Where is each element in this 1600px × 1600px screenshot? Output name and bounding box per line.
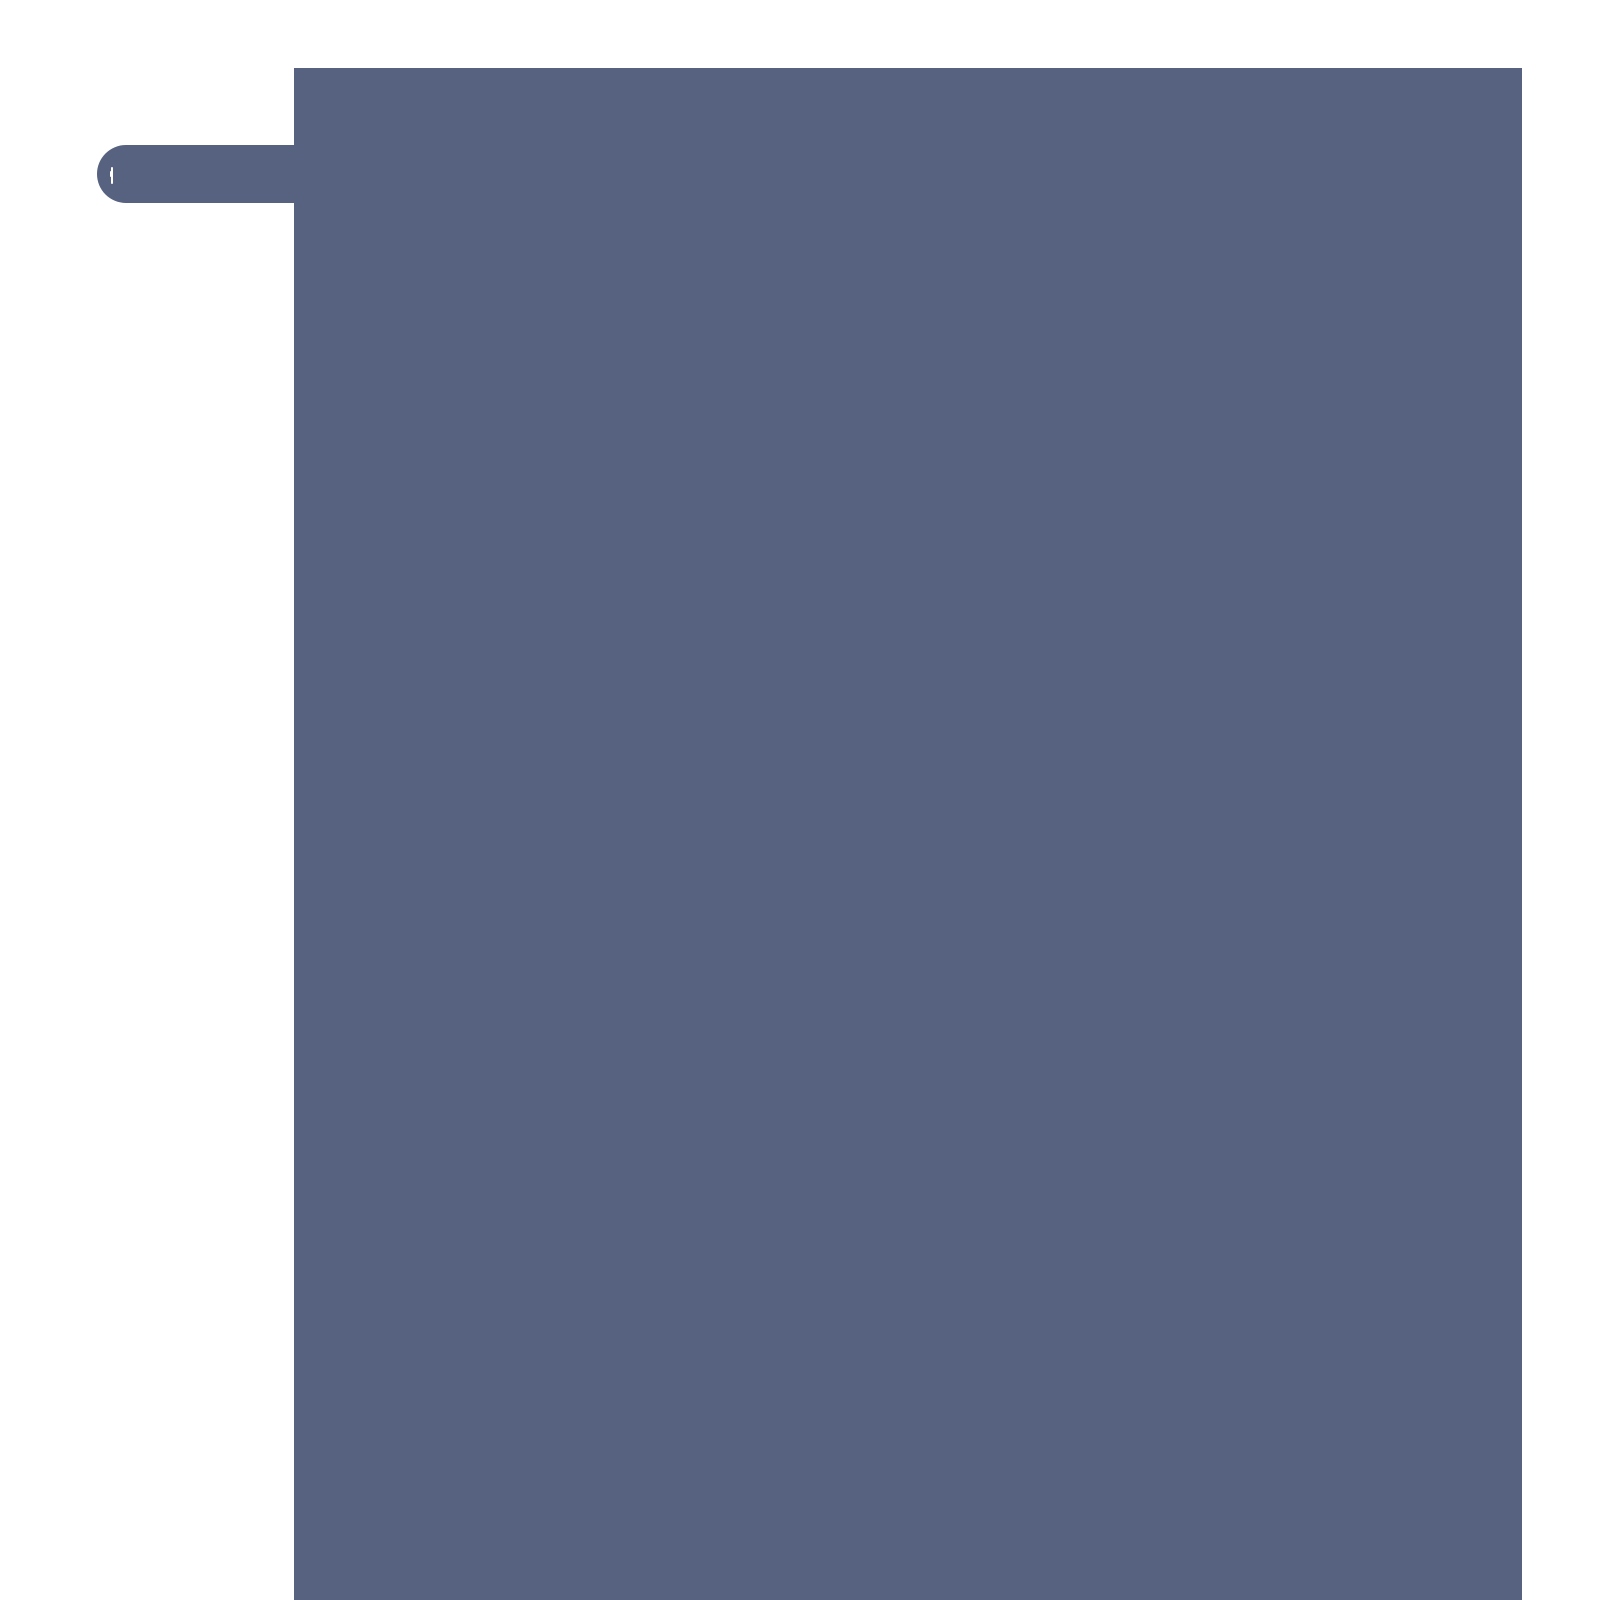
screenshot-canvas bbox=[0, 0, 1600, 1600]
panel-pull-handle[interactable] bbox=[97, 145, 300, 203]
overlay-panel bbox=[294, 68, 1522, 1600]
handle-notch-bump-icon bbox=[110, 171, 113, 177]
